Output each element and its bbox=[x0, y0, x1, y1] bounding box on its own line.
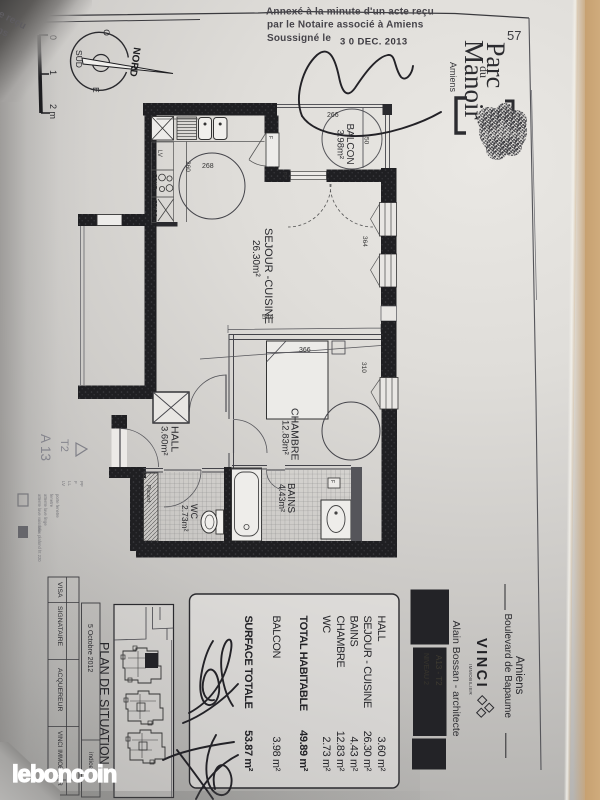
svg-text:F: F bbox=[329, 480, 335, 483]
svg-text:Amiens: Amiens bbox=[448, 62, 458, 93]
svg-text:LL: LL bbox=[67, 481, 72, 487]
svg-text:VINCI: VINCI bbox=[473, 638, 489, 689]
svg-text:3.60 m²: 3.60 m² bbox=[375, 736, 387, 771]
svg-text:par le Notaire associé à Amien: par le Notaire associé à Amiens bbox=[267, 20, 424, 31]
svg-text:LV: LV bbox=[61, 481, 66, 486]
svg-text:IMMOBILIER: IMMOBILIER bbox=[468, 664, 473, 695]
svg-text:FRIGO: FRIGO bbox=[151, 200, 157, 218]
svg-text:Annexé à la minute d'un acte r: Annexé à la minute d'un acte reçu bbox=[266, 7, 434, 18]
svg-text:4.43 m²: 4.43 m² bbox=[348, 736, 360, 771]
svg-text:SIGNATAIRE: SIGNATAIRE bbox=[56, 606, 63, 647]
svg-text:PF: PF bbox=[79, 481, 84, 487]
svg-text:3 0 DEC. 2013: 3 0 DEC. 2013 bbox=[340, 37, 408, 48]
svg-text:364: 364 bbox=[361, 236, 368, 247]
svg-text:BALCON: BALCON bbox=[270, 616, 282, 659]
svg-text:268: 268 bbox=[202, 163, 214, 170]
svg-text:266: 266 bbox=[327, 112, 339, 119]
svg-text:3.60m²: 3.60m² bbox=[159, 426, 170, 456]
svg-text:544: 544 bbox=[262, 314, 274, 321]
svg-text:2 m: 2 m bbox=[48, 104, 58, 119]
svg-text:VISA: VISA bbox=[56, 582, 63, 598]
svg-text:Soussigné le: Soussigné le bbox=[267, 33, 331, 44]
svg-text:310: 310 bbox=[360, 362, 367, 373]
svg-text:Boulevard de Bapaume: Boulevard de Bapaume bbox=[502, 614, 513, 719]
svg-text:3.98 m²: 3.98 m² bbox=[270, 736, 282, 771]
svg-text:A 13: A 13 bbox=[38, 434, 53, 461]
svg-text:SURFACE TOTALE: SURFACE TOTALE bbox=[242, 616, 254, 709]
svg-text:5 Octobre 2012: 5 Octobre 2012 bbox=[86, 624, 93, 672]
svg-text:2.73m²: 2.73m² bbox=[180, 505, 190, 532]
svg-text:ACQUEREUR: ACQUEREUR bbox=[56, 668, 63, 712]
svg-text:366: 366 bbox=[299, 347, 311, 354]
svg-text:26.30 m²: 26.30 m² bbox=[361, 731, 373, 772]
svg-text:50: 50 bbox=[363, 137, 370, 145]
svg-text:fenetre: fenetre bbox=[49, 494, 54, 508]
svg-text:2.73 m²: 2.73 m² bbox=[320, 736, 332, 771]
svg-text:A13 - T2: A13 - T2 bbox=[434, 655, 443, 686]
svg-text:BAINS: BAINS bbox=[348, 616, 360, 647]
svg-text:LV: LV bbox=[156, 150, 162, 157]
svg-text:Alain Bossan - architecte: Alain Bossan - architecte bbox=[450, 621, 462, 737]
svg-text:E: E bbox=[91, 87, 101, 93]
svg-text:26.30m²: 26.30m² bbox=[250, 240, 261, 277]
svg-text:O: O bbox=[101, 29, 112, 37]
svg-text:HALL: HALL bbox=[375, 616, 387, 642]
svg-text:12.83m²: 12.83m² bbox=[280, 420, 291, 455]
svg-text:Placard: Placard bbox=[145, 485, 151, 502]
svg-text:TOTAL HABITABLE: TOTAL HABITABLE bbox=[297, 616, 309, 711]
svg-text:faux plafond ht 220: faux plafond ht 220 bbox=[37, 526, 42, 562]
svg-text:T2: T2 bbox=[58, 439, 70, 452]
svg-text:CHAMBRE: CHAMBRE bbox=[334, 616, 346, 668]
svg-text:4.43m²: 4.43m² bbox=[277, 484, 287, 512]
svg-text:57: 57 bbox=[507, 28, 521, 43]
svg-text:12.83 m²: 12.83 m² bbox=[334, 731, 346, 772]
svg-text:SEJOUR -CUISINE: SEJOUR -CUISINE bbox=[262, 228, 274, 324]
svg-text:49.89 m²: 49.89 m² bbox=[297, 730, 309, 772]
svg-text:porte fenetre: porte fenetre bbox=[55, 494, 60, 518]
svg-text:Manoir: Manoir bbox=[459, 40, 489, 119]
svg-text:FOUR: FOUR bbox=[151, 174, 157, 190]
svg-text:F: F bbox=[267, 136, 273, 139]
svg-text:Amiens: Amiens bbox=[513, 656, 525, 695]
svg-text:PLAN DE SITUATION: PLAN DE SITUATION bbox=[97, 642, 111, 765]
svg-text:F: F bbox=[73, 481, 78, 484]
svg-text:attente lave linge: attente lave linge bbox=[43, 494, 48, 526]
svg-text:PF: PF bbox=[281, 172, 287, 178]
svg-text:SEJOUR - CUISINE: SEJOUR - CUISINE bbox=[361, 616, 373, 708]
svg-text:53.87 m²: 53.87 m² bbox=[242, 730, 254, 772]
svg-text:WC: WC bbox=[320, 616, 332, 634]
svg-text:260: 260 bbox=[184, 161, 191, 172]
svg-text:NORD: NORD bbox=[127, 47, 142, 78]
svg-text:NIVEAU 2: NIVEAU 2 bbox=[422, 653, 429, 685]
